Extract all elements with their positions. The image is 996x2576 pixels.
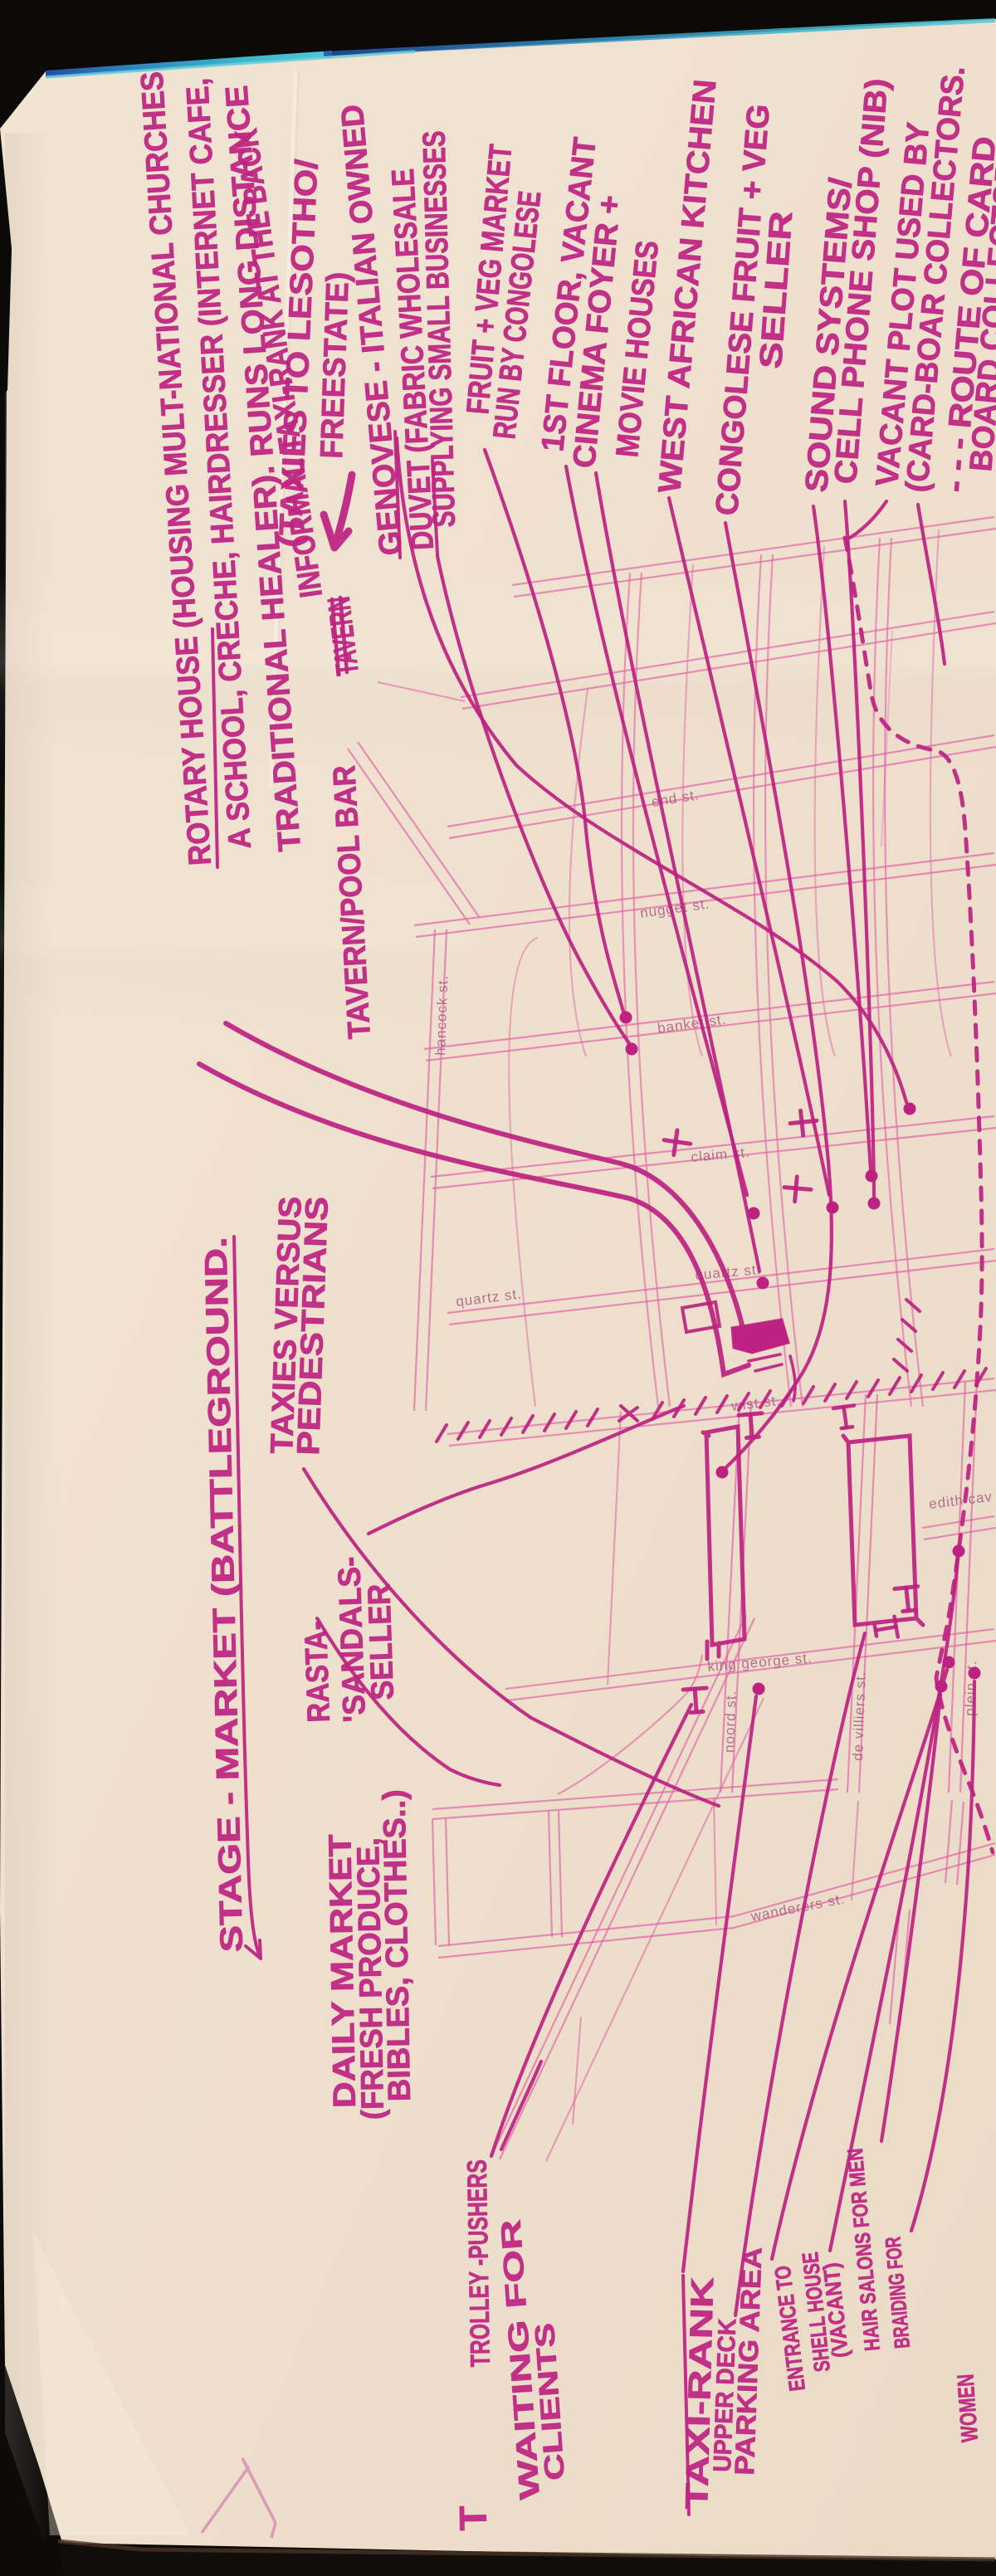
svg-text:T: T bbox=[451, 2505, 495, 2531]
svg-text:BIBLES, CLOTHES..): BIBLES, CLOTHES..) bbox=[377, 1789, 417, 2102]
svg-text:RASTA-: RASTA- bbox=[299, 1621, 337, 1723]
svg-text:FREESTATE): FREESTATE) bbox=[315, 271, 356, 459]
svg-text:SELLER: SELLER bbox=[362, 1583, 401, 1700]
svg-text:noord st.: noord st. bbox=[721, 1690, 740, 1753]
svg-text:WOMEN: WOMEN bbox=[952, 2374, 983, 2443]
svg-text:TROLLEY -PUSHERS: TROLLEY -PUSHERS bbox=[461, 2159, 496, 2368]
svg-text:hancock st.: hancock st. bbox=[432, 975, 451, 1056]
